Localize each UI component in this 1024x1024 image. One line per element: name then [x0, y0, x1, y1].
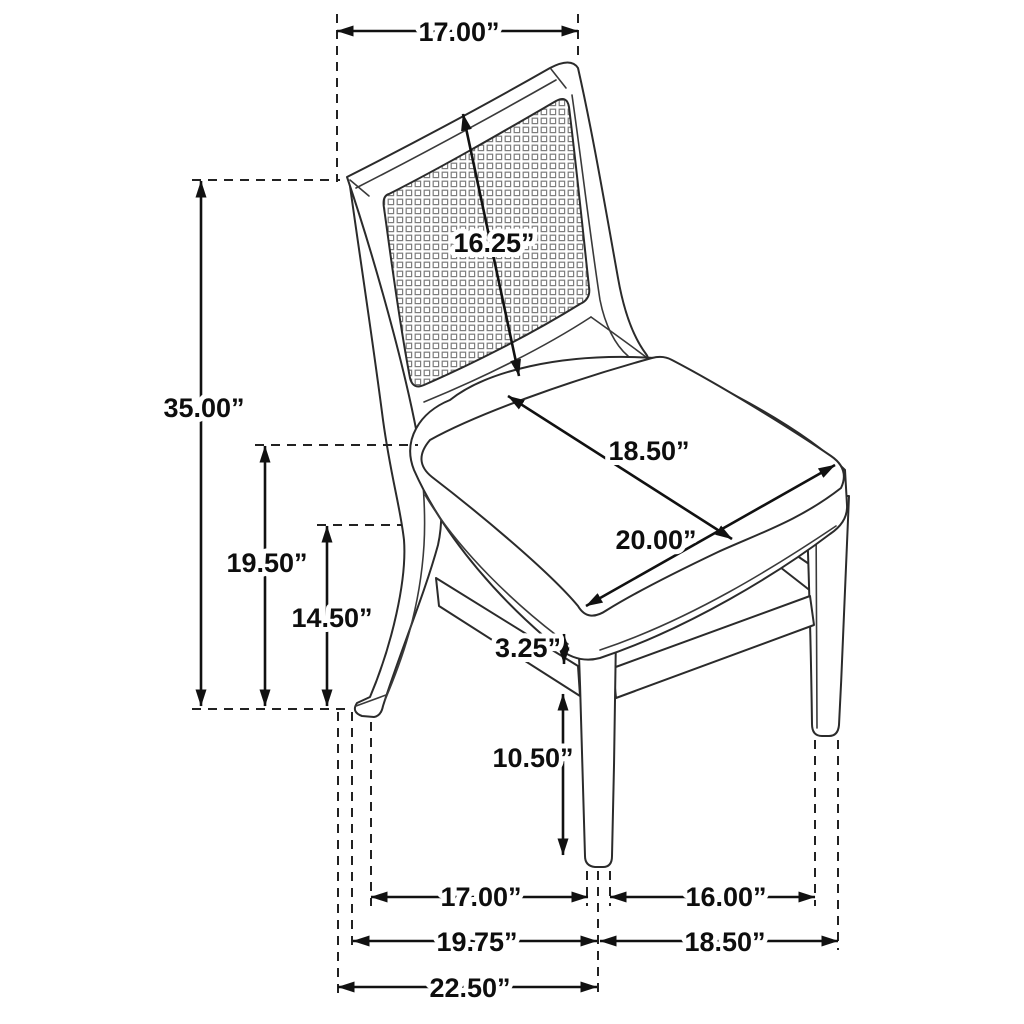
front-left-leg: [578, 628, 616, 867]
dim-label: 17.00”: [418, 17, 499, 47]
dim-label: 14.50”: [291, 603, 372, 633]
chair-dimension-diagram: 17.00” 16.25” 35.00” 19.50” 14.50”: [0, 0, 1024, 1024]
dim-label: 3.25”: [495, 633, 561, 663]
dim-rail-to-stretcher-gap: 3.25”: [495, 633, 564, 664]
dim-label: 18.50”: [684, 927, 765, 957]
diagram-svg: 17.00” 16.25” 35.00” 19.50” 14.50”: [0, 0, 1024, 1024]
dim-leg-spacing-side: 17.00”: [371, 882, 588, 912]
dim-label: 22.50”: [429, 973, 510, 1003]
dim-footprint-mid-depth: 19.75”: [353, 927, 597, 957]
dim-label: 35.00”: [163, 393, 244, 423]
chair-line-art: [347, 63, 849, 868]
dim-label: 16.00”: [685, 882, 766, 912]
dim-label: 16.25”: [453, 228, 534, 258]
dim-overall-depth: 22.50”: [338, 973, 597, 1003]
dim-label: 19.50”: [226, 548, 307, 578]
dim-label: 20.00”: [615, 525, 696, 555]
dim-label: 10.50”: [492, 743, 573, 773]
dim-stretcher-to-floor: 10.50”: [492, 694, 573, 855]
dim-label: 17.00”: [440, 882, 521, 912]
dim-label: 18.50”: [608, 436, 689, 466]
dim-label: 19.75”: [436, 927, 517, 957]
dim-leg-spacing-front: 16.00”: [610, 882, 815, 912]
dim-footprint-front-width: 18.50”: [600, 927, 838, 957]
